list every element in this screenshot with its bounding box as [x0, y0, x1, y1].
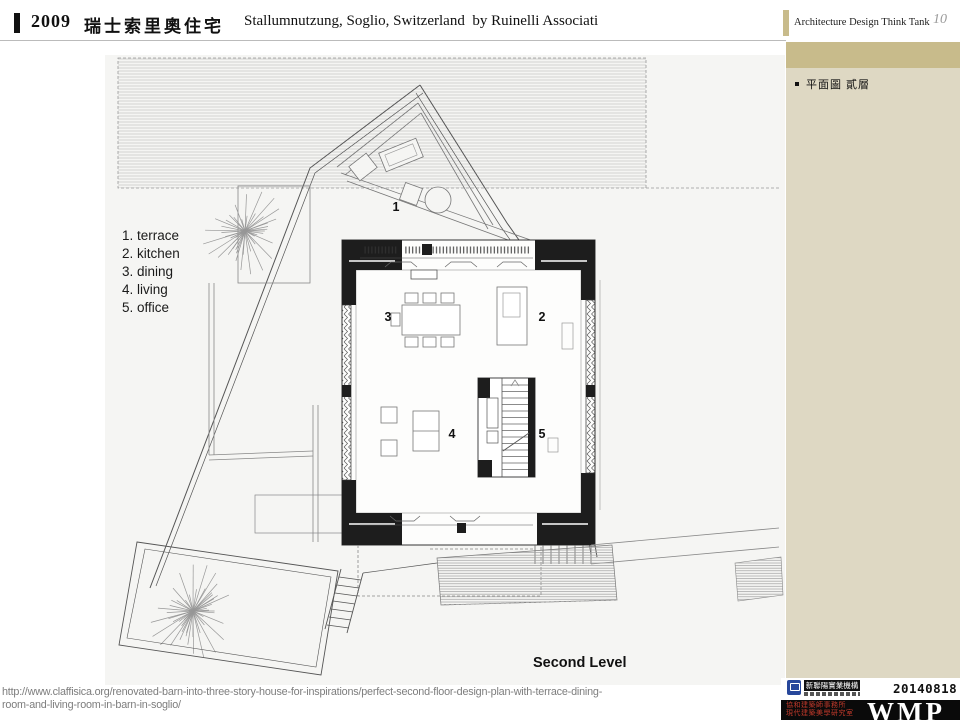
page-number: 10	[933, 12, 947, 28]
sidebar-tan-band	[786, 42, 960, 68]
ramp-hatch	[437, 545, 617, 605]
wmp-logo: WMP	[867, 700, 945, 720]
level-label: Second Level	[533, 655, 626, 671]
title-english: Stallumnutzung, Soglio, Switzerland by R…	[244, 13, 598, 30]
title-year: 2009	[31, 11, 71, 32]
company-emblem-icon	[787, 680, 801, 695]
studio-name-line2: 現代建築美學研究室	[786, 710, 854, 718]
roof-hatch-area	[118, 58, 779, 188]
footer-logo-strip: 新聯陽實業機構 20140818	[781, 678, 960, 700]
dining-table	[402, 305, 460, 335]
header-divider	[0, 40, 786, 41]
presentation-slide: 2009 瑞士索里奧住宅 Stallumnutzung, Soglio, Swi…	[0, 0, 960, 720]
legend-item: 5. office	[122, 299, 180, 317]
ramp-hatch-right	[735, 557, 783, 601]
floor-plan-image: 1 2 3 4 5 1. terrace 2. kitchen 3. dinin…	[105, 55, 785, 685]
source-url-line1: http://www.claffisica.org/renovated-barn…	[2, 686, 784, 699]
stairwell	[478, 378, 535, 477]
kitchen-island	[497, 287, 527, 345]
sidebar-note: 平面圖 貳層	[795, 76, 870, 92]
company-logo-text: 新聯陽實業機構	[804, 680, 860, 691]
tree-top	[203, 192, 279, 274]
room-label-kitchen: 2	[539, 310, 546, 324]
room-label-office: 5	[539, 427, 546, 441]
room-label-terrace: 1	[393, 200, 400, 214]
path-walls-left	[209, 283, 343, 542]
brand-text: Architecture Design Think Tank	[794, 17, 930, 28]
room-label-living: 4	[449, 427, 456, 441]
legend-item: 1. terrace	[122, 227, 180, 245]
sidebar-panel	[786, 68, 960, 678]
title-marker-bar	[14, 13, 20, 33]
building-walls	[342, 240, 600, 545]
sidebar-note-text: 平面圖 貳層	[806, 79, 870, 91]
date-stamp: 20140818	[893, 681, 957, 696]
slide-header: 2009 瑞士索里奧住宅 Stallumnutzung, Soglio, Swi…	[0, 0, 960, 40]
plan-legend: 1. terrace 2. kitchen 3. dining 4. livin…	[122, 227, 180, 317]
legend-item: 3. dining	[122, 263, 180, 281]
room-label-dining: 3	[385, 310, 392, 324]
company-logo-subtext-strip	[804, 692, 860, 696]
source-url-line2: room-and-living-room-in-barn-in-soglio/	[2, 699, 784, 712]
bullet-square-icon	[795, 82, 799, 86]
legend-item: 2. kitchen	[122, 245, 180, 263]
legend-item: 4. living	[122, 281, 180, 299]
title-chinese: 瑞士索里奧住宅	[84, 12, 224, 37]
studio-name-line1: 協和建築師事務所	[786, 702, 846, 710]
source-url: http://www.claffisica.org/renovated-barn…	[2, 686, 784, 712]
footer-black-strip: 協和建築師事務所 現代建築美學研究室 WMP	[781, 700, 960, 720]
brand-marker-bar	[783, 10, 789, 36]
terrace-table	[425, 187, 451, 213]
floor-plan-drawing: 1 2 3 4 5	[105, 55, 785, 685]
